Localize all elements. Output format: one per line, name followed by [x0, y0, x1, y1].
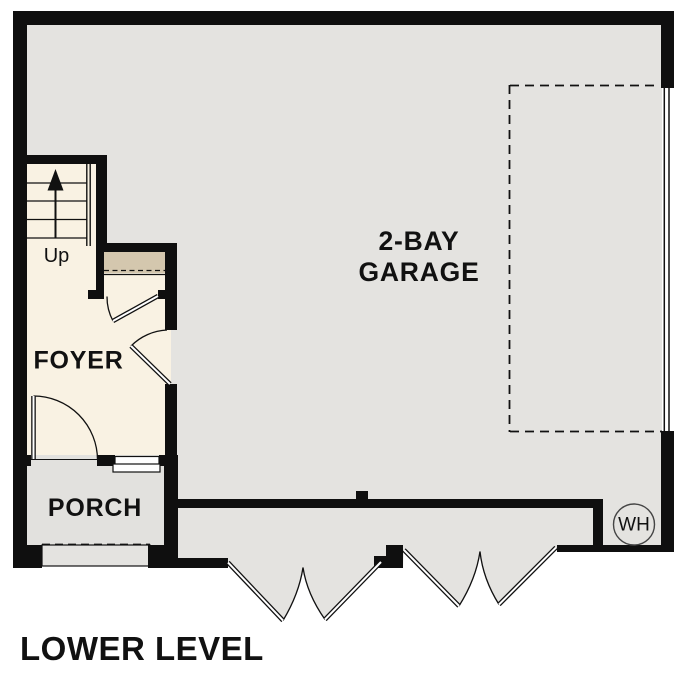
garage-label-line1: 2-BAY	[378, 226, 459, 256]
water-heater-label: WH	[618, 515, 650, 536]
water-heater-symbol: WH	[614, 504, 655, 545]
porch-step	[42, 545, 150, 566]
garage-label-line2: GARAGE	[358, 257, 479, 287]
plan-title: LOWER LEVEL	[20, 630, 264, 667]
floor-plan: WH 2-BAY GARAGE FOYER PORCH Up LOWER LEV…	[0, 0, 687, 687]
stairwell-floor	[27, 160, 107, 246]
front-window	[113, 457, 160, 473]
porch-label: PORCH	[48, 494, 142, 522]
garage-side-window-band	[662, 88, 672, 431]
foyer-label: FOYER	[33, 347, 123, 375]
stairs-up-label: Up	[44, 245, 70, 267]
